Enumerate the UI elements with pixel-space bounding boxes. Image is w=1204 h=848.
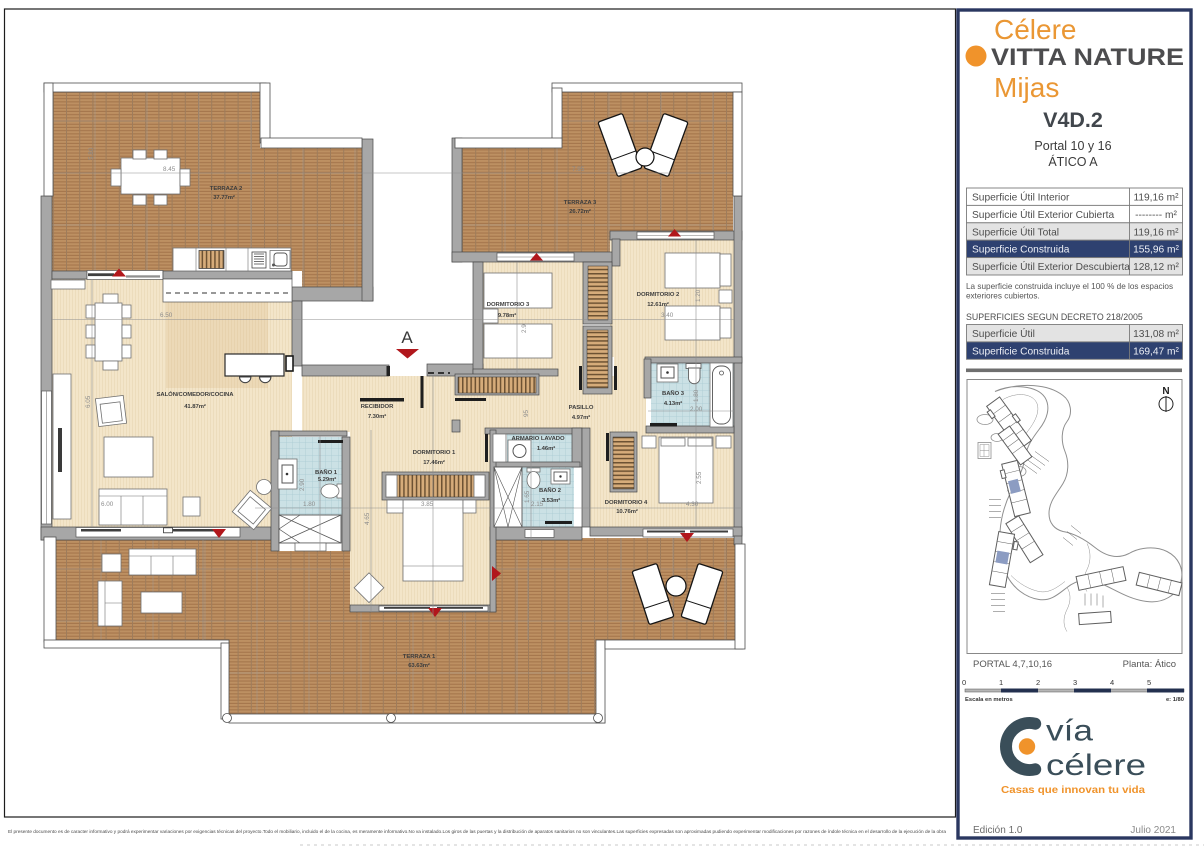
- svg-text:1.20: 1.20: [695, 289, 702, 302]
- svg-text:119,16 m²: 119,16 m²: [1133, 193, 1179, 204]
- svg-text:0: 0: [962, 678, 966, 687]
- svg-text:2.00: 2.00: [690, 406, 703, 413]
- svg-text:SALÓN/COMEDOR/COCINA: SALÓN/COMEDOR/COCINA: [157, 390, 235, 398]
- svg-text:TERRAZA 1: TERRAZA 1: [403, 654, 436, 660]
- svg-text:Superficie Útil: Superficie Útil: [972, 327, 1035, 340]
- svg-text:12.61m²: 12.61m²: [647, 301, 669, 308]
- svg-text:Casas que innovan tu vida: Casas que innovan tu vida: [1001, 784, 1145, 796]
- svg-text:128,12 m²: 128,12 m²: [1133, 262, 1179, 273]
- svg-text:TERRAZA 3: TERRAZA 3: [564, 200, 597, 206]
- svg-text:Edición 1.0: Edición 1.0: [973, 825, 1023, 836]
- svg-text:169,47 m²: 169,47 m²: [1133, 346, 1179, 357]
- svg-text:3: 3: [1073, 678, 1077, 687]
- svg-text:TERRAZA 2: TERRAZA 2: [210, 186, 243, 192]
- svg-text:2.9: 2.9: [521, 324, 528, 333]
- svg-text:exteriores cubiertos.: exteriores cubiertos.: [966, 292, 1040, 301]
- svg-text:V4D.2: V4D.2: [1043, 108, 1103, 132]
- svg-text:155,96 m²: 155,96 m²: [1133, 245, 1179, 256]
- svg-text:BAÑO 1: BAÑO 1: [315, 469, 338, 476]
- svg-text:95: 95: [523, 409, 530, 417]
- svg-text:2.90: 2.90: [299, 478, 306, 491]
- svg-text:7.95: 7.95: [572, 166, 585, 173]
- svg-text:5.80: 5.80: [88, 147, 95, 160]
- svg-text:3.53m²: 3.53m²: [542, 497, 560, 504]
- svg-text:PORTAL 4,7,10,16: PORTAL 4,7,10,16: [973, 659, 1052, 670]
- svg-text:Superficie Útil Exterior Descu: Superficie Útil Exterior Descubierta: [972, 260, 1130, 273]
- svg-text:6.00: 6.00: [101, 501, 114, 508]
- svg-text:6.50: 6.50: [160, 312, 173, 319]
- svg-text:8.45: 8.45: [163, 166, 176, 173]
- svg-text:5: 5: [1147, 678, 1151, 687]
- svg-text:Julio 2021: Julio 2021: [1130, 825, 1176, 836]
- svg-text:A: A: [401, 328, 413, 347]
- svg-text:Planta: Ático: Planta: Ático: [1123, 659, 1176, 670]
- svg-text:Célere: Célere: [994, 14, 1076, 45]
- svg-text:2: 2: [1036, 678, 1040, 687]
- svg-text:vía: vía: [1046, 715, 1093, 748]
- svg-text:Portal 10 y 16: Portal 10 y 16: [1034, 139, 1111, 153]
- svg-text:17.46m²: 17.46m²: [423, 459, 445, 466]
- svg-text:RECIBIDOR: RECIBIDOR: [361, 404, 394, 410]
- svg-text:4.97m²: 4.97m²: [572, 414, 590, 421]
- svg-text:DORMITORIO 3: DORMITORIO 3: [487, 302, 530, 308]
- svg-text:41.87m²: 41.87m²: [184, 403, 206, 410]
- svg-text:37.77m²: 37.77m²: [213, 194, 235, 201]
- svg-text:N: N: [1162, 386, 1169, 397]
- svg-text:119,16 m²: 119,16 m²: [1133, 227, 1179, 238]
- svg-text:ARMARIO LAVADO: ARMARIO LAVADO: [511, 436, 565, 442]
- svg-text:PASILLO: PASILLO: [569, 405, 594, 411]
- svg-text:Escala en metros: Escala en metros: [965, 697, 1013, 703]
- svg-text:1.65: 1.65: [524, 490, 531, 503]
- svg-text:DORMITORIO 4: DORMITORIO 4: [605, 500, 648, 506]
- svg-text:e: 1/80: e: 1/80: [1166, 697, 1184, 703]
- svg-text:BAÑO 2: BAÑO 2: [539, 487, 562, 494]
- svg-text:Superficie Construida: Superficie Construida: [972, 245, 1070, 256]
- svg-text:4.13m²: 4.13m²: [664, 400, 682, 407]
- svg-text:6.05: 6.05: [85, 395, 92, 408]
- svg-text:1.80: 1.80: [303, 501, 316, 508]
- svg-text:26.72m²: 26.72m²: [569, 208, 591, 215]
- svg-text:10.76m²: 10.76m²: [616, 508, 638, 515]
- svg-text:5.29m²: 5.29m²: [318, 476, 336, 483]
- svg-text:9.78m²: 9.78m²: [498, 312, 516, 319]
- svg-text:4.65: 4.65: [364, 512, 371, 525]
- svg-text:El presente documento es de ca: El presente documento es de caracter inf…: [8, 829, 946, 835]
- svg-text:VITTA NATURE: VITTA NATURE: [991, 44, 1184, 71]
- svg-text:ÁTICO A: ÁTICO A: [1048, 154, 1098, 169]
- svg-text:1.46m²: 1.46m²: [537, 445, 555, 452]
- svg-text:DORMITORIO 2: DORMITORIO 2: [637, 292, 680, 298]
- svg-text:La superficie construida inclu: La superficie construida incluye el 100 …: [966, 282, 1173, 291]
- svg-text:Mijas: Mijas: [994, 72, 1059, 103]
- svg-text:2.55: 2.55: [696, 471, 703, 484]
- svg-text:Superficie Construida: Superficie Construida: [972, 346, 1070, 357]
- svg-text:1: 1: [999, 678, 1003, 687]
- svg-text:BAÑO 3: BAÑO 3: [662, 390, 685, 397]
- svg-text:célere: célere: [1046, 749, 1146, 782]
- svg-text:131,08 m²: 131,08 m²: [1133, 329, 1179, 340]
- svg-text:4: 4: [1110, 678, 1114, 687]
- svg-text:Superficie Útil Total: Superficie Útil Total: [972, 225, 1059, 238]
- svg-text:3.40: 3.40: [661, 312, 674, 319]
- svg-text:4.30: 4.30: [686, 501, 699, 508]
- svg-text:-------- m²: -------- m²: [1135, 210, 1177, 221]
- svg-text:1.80: 1.80: [693, 389, 700, 402]
- svg-text:Superficie Útil Interior: Superficie Útil Interior: [972, 191, 1070, 204]
- svg-text:63.63m²: 63.63m²: [408, 662, 430, 669]
- svg-text:3.85: 3.85: [421, 501, 434, 508]
- svg-text:SUPERFICIES SEGUN DECRETO 218/: SUPERFICIES SEGUN DECRETO 218/2005: [966, 312, 1143, 322]
- svg-text:Superficie Útil Exterior Cubie: Superficie Útil Exterior Cubierta: [972, 208, 1114, 221]
- svg-text:DORMITORIO 1: DORMITORIO 1: [413, 450, 456, 456]
- svg-text:7.30m²: 7.30m²: [368, 413, 386, 420]
